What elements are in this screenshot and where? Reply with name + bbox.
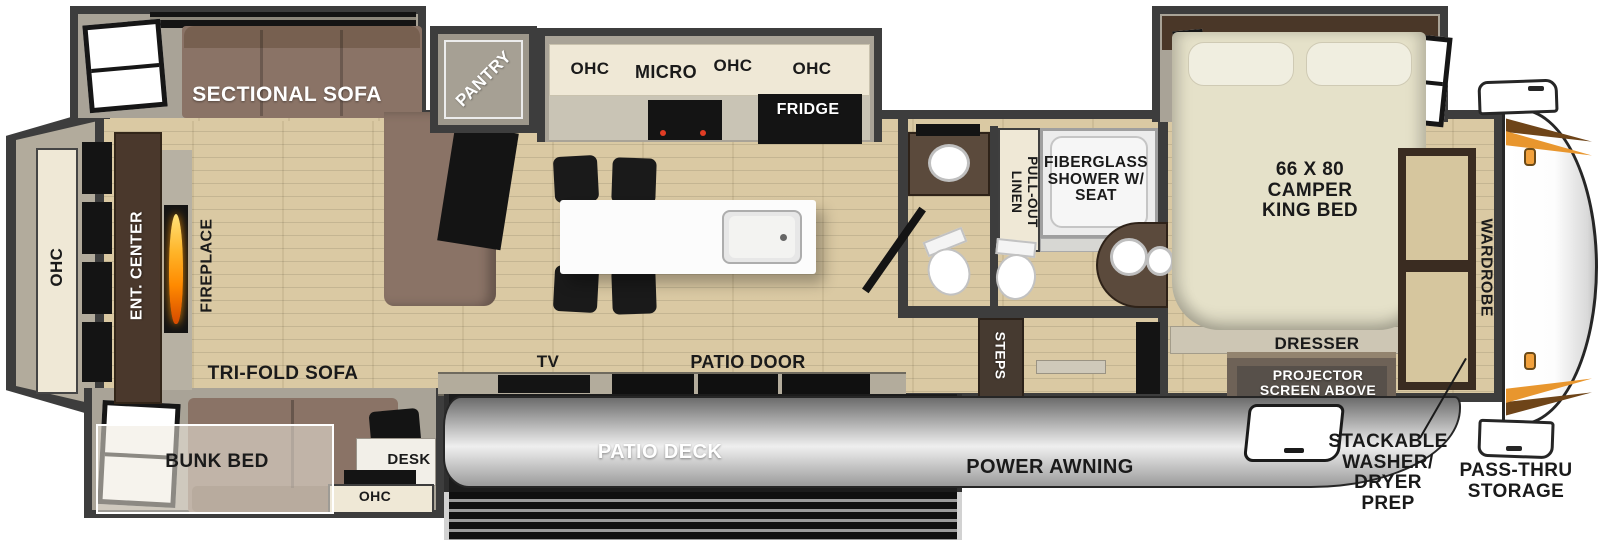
label-washer-dryer-prep: STACKABLE WASHER/ DRYER PREP <box>1326 432 1450 514</box>
rear-cabinet-2 <box>82 202 112 254</box>
bath-wall-bottom <box>898 306 1166 318</box>
sink-faucet-icon <box>780 234 787 241</box>
island-chair-2 <box>611 157 657 205</box>
bed-pillow-right <box>1306 42 1412 86</box>
label-power-awning: POWER AWNING <box>940 457 1160 479</box>
label-fireplace: FIREPLACE <box>198 191 215 341</box>
label-micro: MICRO <box>626 63 706 82</box>
label-wardrobe: WARDROBE <box>1477 193 1494 343</box>
landing-step-plate <box>1036 360 1106 374</box>
awning-hatch-handle-icon <box>1284 448 1304 453</box>
label-rear-ohc: OHC <box>48 232 66 302</box>
patio-door-divider-1 <box>694 374 698 394</box>
pass-thru-door-bottom-handle-icon <box>1506 446 1522 451</box>
bed-pillow-left <box>1188 42 1294 86</box>
closet-frame-lower <box>1398 264 1476 390</box>
master-sink-1 <box>1110 238 1148 276</box>
label-fridge: FRIDGE <box>763 101 853 118</box>
sectional-sofa-back <box>184 26 420 48</box>
landing-closet <box>1136 322 1160 394</box>
label-king-bed: 66 X 80 CAMPER KING BED <box>1250 160 1370 222</box>
label-projector-screen: PROJECTOR SCREEN ABOVE <box>1243 368 1393 398</box>
label-ohc-kitchen-2: OHC <box>703 57 763 75</box>
pass-thru-door-top <box>1477 79 1558 116</box>
half-bath-sink <box>928 144 970 182</box>
label-desk-ohc: OHC <box>340 489 410 504</box>
rv-floorplan: SECTIONAL SOFA PANTRY OHC MICRO OHC OHC … <box>0 0 1600 542</box>
label-ohc-kitchen-1: OHC <box>560 60 620 78</box>
label-ent-center: ENT. CENTER <box>128 186 145 346</box>
patio-deck-railing <box>444 492 962 540</box>
label-patio-deck: PATIO DECK <box>570 442 750 464</box>
label-tv: TV <box>523 353 573 371</box>
cooktop-burner-1 <box>660 130 666 136</box>
bath-wall-divider <box>990 126 998 318</box>
living-room-window <box>82 19 167 113</box>
patio-door-glass <box>612 374 870 394</box>
label-tri-fold-sofa: TRI-FOLD SOFA <box>173 364 393 385</box>
cooktop <box>648 100 722 140</box>
pass-thru-door-bottom <box>1477 419 1554 460</box>
nose-marker-light-top <box>1524 148 1536 166</box>
nose-marker-light-bottom <box>1524 352 1536 370</box>
label-steps: STEPS <box>992 316 1007 396</box>
label-pass-thru-storage: PASS-THRU STORAGE <box>1451 461 1581 502</box>
island-chair-1 <box>553 155 599 203</box>
fireplace-flame-icon <box>169 214 183 324</box>
front-cap-nose <box>1502 108 1598 426</box>
label-bunk-bed: BUNK BED <box>137 452 297 473</box>
pass-thru-door-top-handle-icon <box>1528 86 1544 91</box>
label-desk: DESK <box>369 452 449 468</box>
patio-door-divider-2 <box>778 374 782 394</box>
bath-wall-left <box>898 112 908 318</box>
half-bath-mirror <box>916 124 980 136</box>
label-sectional-sofa: SECTIONAL SOFA <box>187 84 387 107</box>
rear-cabinet-1 <box>82 142 112 194</box>
rear-cabinet-4 <box>82 322 112 382</box>
closet-frame-upper <box>1398 148 1476 268</box>
rear-cabinet-3 <box>82 262 112 314</box>
label-dresser: DRESSER <box>1257 335 1377 353</box>
wall-tv <box>498 375 590 393</box>
master-sink-2 <box>1146 246 1174 276</box>
island-chair-4 <box>611 267 657 315</box>
cooktop-burner-2 <box>700 130 706 136</box>
label-fiberglass-shower: FIBERGLASS SHOWER W/ SEAT <box>1026 155 1166 205</box>
label-patio-door: PATIO DOOR <box>668 353 828 372</box>
label-ohc-kitchen-3: OHC <box>782 60 842 78</box>
